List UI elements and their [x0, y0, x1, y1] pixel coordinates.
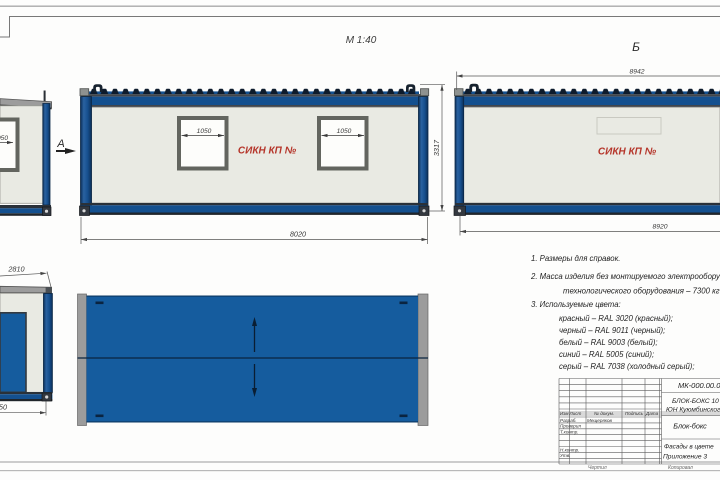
- svg-text:8942: 8942: [629, 69, 644, 76]
- svg-text:Б: Б: [632, 40, 640, 54]
- svg-text:М 1:40: М 1:40: [346, 35, 377, 46]
- svg-text:Копировал: Копировал: [668, 465, 693, 471]
- svg-text:8920: 8920: [652, 224, 667, 231]
- svg-text:красный – RAL 3020 (красный);: красный – RAL 3020 (красный);: [559, 314, 673, 323]
- svg-text:№ докум.: № докум.: [594, 411, 614, 416]
- svg-text:2. Масса изделия без монтируем: 2. Масса изделия без монтируемого электр…: [530, 272, 720, 281]
- svg-text:8020: 8020: [290, 230, 306, 239]
- svg-text:Лист: Лист: [569, 411, 582, 416]
- svg-text:СИКН КП №: СИКН КП №: [238, 146, 297, 157]
- svg-text:БЛОК-БОКС 10: БЛОК-БОКС 10: [672, 398, 719, 405]
- svg-text:Изм: Изм: [560, 411, 569, 416]
- svg-text:Фасады в цвете: Фасады в цвете: [664, 443, 714, 451]
- svg-text:СИКН КП №: СИКН КП №: [598, 147, 657, 158]
- svg-text:белый – RAL 9003 (белый);: белый – RAL 9003 (белый);: [559, 338, 658, 347]
- svg-text:Т.контр.: Т.контр.: [560, 430, 579, 435]
- svg-text:1050: 1050: [197, 128, 212, 135]
- svg-text:Приложение 3: Приложение 3: [663, 454, 707, 461]
- svg-text:синий – RAL 5005 (синий);: синий – RAL 5005 (синий);: [559, 350, 654, 359]
- svg-text:Блок-бокс: Блок-бокс: [673, 422, 707, 431]
- svg-text:МК-000.00.00: МК-000.00.00: [678, 381, 720, 390]
- svg-text:Чертил: Чертил: [588, 465, 607, 471]
- svg-text:Дата: Дата: [645, 411, 659, 416]
- svg-text:Разраб.: Разраб.: [560, 418, 577, 423]
- svg-text:черный – RAL 9011 (черный);: черный – RAL 9011 (черный);: [559, 326, 665, 335]
- svg-text:А: А: [56, 138, 64, 150]
- svg-text:Подпись: Подпись: [625, 411, 644, 416]
- svg-text:2810: 2810: [7, 265, 24, 274]
- svg-text:серый – RAL 7038 (холодный сер: серый – RAL 7038 (холодный серый);: [559, 362, 695, 371]
- svg-text:технологического оборудования: технологического оборудования – 7300 кг.: [563, 287, 720, 296]
- svg-text:1050: 1050: [0, 135, 8, 142]
- svg-text:3. Используемые цвета:: 3. Используемые цвета:: [531, 300, 621, 309]
- svg-text:Проверил: Проверил: [560, 424, 581, 429]
- svg-text:3317: 3317: [432, 139, 441, 156]
- svg-text:2450: 2450: [0, 403, 7, 412]
- svg-text:Утв.: Утв.: [560, 453, 570, 458]
- svg-text:Н.контр.: Н.контр.: [560, 447, 579, 452]
- svg-text:1050: 1050: [337, 128, 352, 135]
- svg-text:Мещеряков: Мещеряков: [587, 418, 613, 423]
- svg-text:1. Размеры для справок.: 1. Размеры для справок.: [531, 254, 620, 263]
- svg-text:ЮН Куюмбинског: ЮН Куюмбинског: [666, 406, 720, 414]
